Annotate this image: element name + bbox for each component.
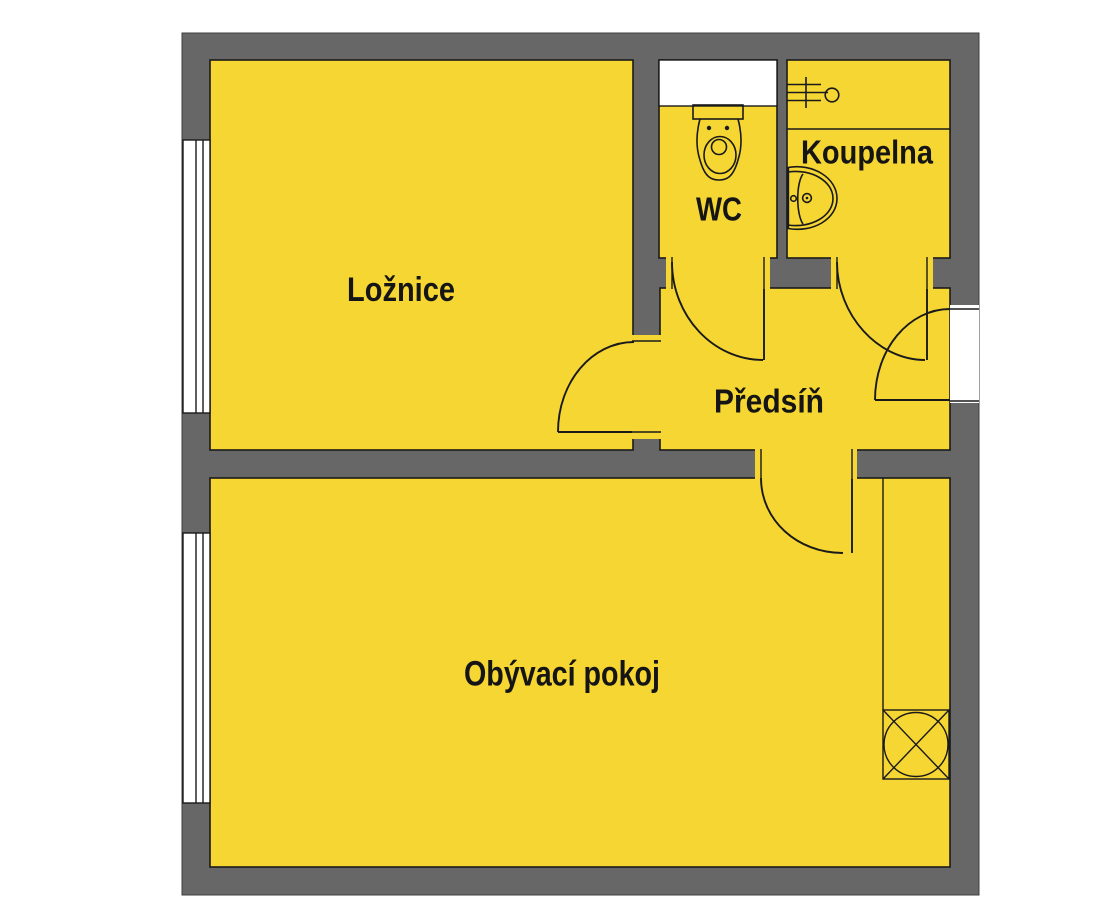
- room-label-predsin: Předsíň: [714, 383, 824, 420]
- toilet-bolt: [725, 126, 729, 130]
- floor-plan-drawing: Ložnice WC Koupelna Předsíň Obývací poko…: [0, 0, 1111, 909]
- room-label-koupelna: Koupelna: [801, 134, 934, 171]
- washbasin-tap-dot: [806, 197, 809, 200]
- koupelna-door-opening: [831, 257, 933, 289]
- installation-shaft: [659, 60, 777, 106]
- room-label-obyvaci-pokoj: Obývací pokoj: [464, 655, 660, 694]
- room-loznice: [210, 60, 633, 450]
- obyvaci-door-opening: [755, 449, 857, 479]
- room-predsin: [660, 288, 950, 450]
- wc-door-opening: [666, 257, 770, 289]
- entrance-opening: [950, 305, 979, 403]
- room-label-wc: WC: [696, 191, 742, 228]
- room-label-loznice: Ložnice: [347, 271, 455, 309]
- loznice-door-opening: [632, 335, 661, 439]
- toilet-bolt: [707, 126, 711, 130]
- floor-plan-canvas: Ložnice WC Koupelna Předsíň Obývací poko…: [0, 0, 1111, 909]
